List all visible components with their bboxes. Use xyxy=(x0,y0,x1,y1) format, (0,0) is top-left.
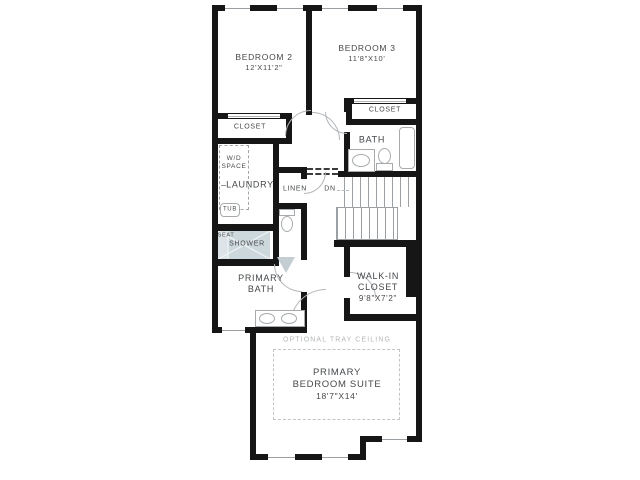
stair-treads-lower xyxy=(336,207,398,240)
suite-dims: 18'7"X14' xyxy=(293,391,382,402)
window xyxy=(322,454,348,460)
window xyxy=(222,327,245,333)
bath-sink-basin xyxy=(352,154,370,167)
suite-line1: PRIMARY xyxy=(293,367,382,379)
tray-ceiling-label: OPTIONAL TRAY CEILING xyxy=(283,337,391,346)
wall-laundry-bottom xyxy=(212,224,279,231)
wall-walkin-bottom xyxy=(344,314,422,321)
dn-leader-line xyxy=(337,190,349,191)
window xyxy=(377,5,403,11)
bath-toilet-tank xyxy=(376,163,393,171)
wd-line1: W/D xyxy=(221,155,246,163)
bathtub xyxy=(399,127,415,169)
room-name: BEDROOM 3 xyxy=(338,43,395,54)
wall-b2-closet-bottom xyxy=(218,138,292,144)
vanity-basin-right xyxy=(281,313,297,324)
walkin-closet-label: WALK-IN CLOSET 9'8"X7'2" xyxy=(357,271,399,304)
primary-suite-label: PRIMARY BEDROOM SUITE 18'7"X14' xyxy=(293,367,382,401)
door-arc-linen xyxy=(304,172,326,194)
wall-bedroom-divider xyxy=(306,5,312,115)
laundry-tub-label: TUB xyxy=(223,206,237,214)
shower-seat-label: SEAT xyxy=(218,233,235,240)
wall-left-upper xyxy=(212,5,218,333)
wall-walkin-left-lower xyxy=(344,298,350,314)
closet-rod xyxy=(354,99,406,103)
laundry-label: LAUNDRY xyxy=(226,179,274,190)
bedroom3-closet-label: CLOSET xyxy=(369,107,401,116)
wd-line2: SPACE xyxy=(221,163,246,171)
room-dims: 11'8"X10' xyxy=(338,54,395,63)
shower-label: SHOWER xyxy=(229,241,265,250)
room-dims: 12'X11'2" xyxy=(235,63,292,72)
wall-laundry-right xyxy=(273,138,279,265)
door-leaf-triangle xyxy=(277,257,295,273)
wall-right xyxy=(416,5,422,442)
room-name: BEDROOM 2 xyxy=(235,52,292,63)
linen-label: LINEN xyxy=(283,186,307,195)
window xyxy=(225,5,250,11)
wall-shower-bottom xyxy=(212,259,279,266)
floor-plan: BEDROOM 2 12'X11'2" BEDROOM 3 11'8"X10' … xyxy=(0,0,640,480)
primary-bath-line2: BATH xyxy=(238,284,284,295)
window xyxy=(322,5,348,11)
suite-line2: BEDROOM SUITE xyxy=(293,379,382,391)
bedroom2-label: BEDROOM 2 12'X11'2" xyxy=(235,52,292,72)
toilet-room-tank xyxy=(279,209,295,216)
bedroom3-label: BEDROOM 3 11'8"X10' xyxy=(338,43,395,63)
closet-rod xyxy=(228,114,280,118)
bath-toilet-bowl xyxy=(378,148,391,164)
soffit-dashed-line xyxy=(307,168,338,170)
wd-space-label: W/D SPACE xyxy=(221,155,246,171)
window xyxy=(277,5,303,11)
wall-chase xyxy=(406,243,422,297)
window xyxy=(268,454,295,460)
primary-bath-label: PRIMARY BATH xyxy=(238,273,284,296)
vanity-basin-left xyxy=(259,313,275,324)
walkin-line1: WALK-IN xyxy=(357,271,399,282)
dn-label: DN xyxy=(324,186,336,195)
wall-left-lower xyxy=(250,327,256,460)
wall-b3-closet-bottom xyxy=(346,119,416,125)
stair-treads-upper xyxy=(344,177,416,207)
window xyxy=(382,436,407,442)
primary-bath-line1: PRIMARY xyxy=(238,273,284,284)
walkin-dims: 9'8"X7'2" xyxy=(357,293,399,303)
bedroom2-closet-label: CLOSET xyxy=(234,124,266,133)
walkin-line2: CLOSET xyxy=(357,282,399,293)
wall-toilet-room-right xyxy=(301,203,307,260)
toilet-room-bowl xyxy=(281,216,293,232)
wall-bath-left-upper xyxy=(344,98,350,112)
bath-label: BATH xyxy=(359,134,385,145)
